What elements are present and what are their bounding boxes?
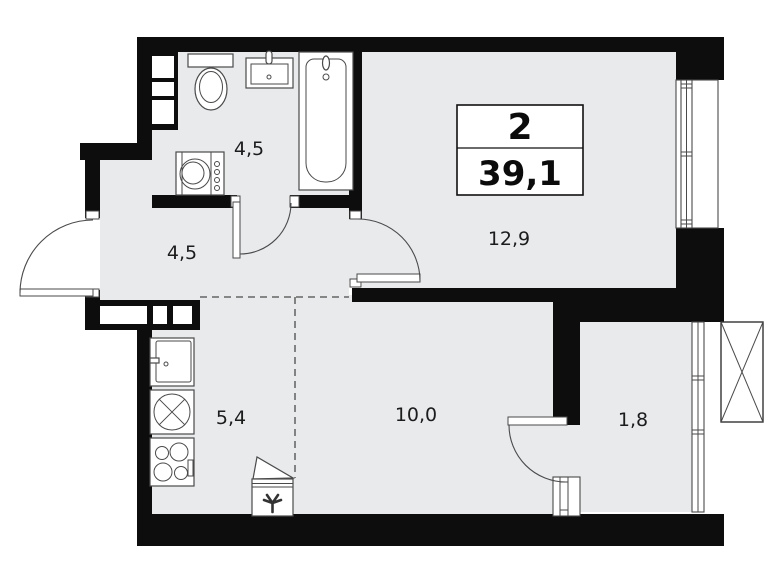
door-jamb: [350, 211, 361, 219]
wall-segment: [580, 288, 724, 322]
sink-faucet: [266, 51, 272, 64]
duct-niche: [153, 306, 167, 324]
balcony-area-label: 1,8: [618, 409, 648, 431]
title-box: 2 39,1: [457, 105, 583, 195]
living-room-window: [676, 80, 718, 228]
kitchen-faucet: [150, 358, 159, 363]
kitchen-area-label: 5,4: [216, 407, 246, 429]
balcony-glazing: [692, 322, 704, 512]
toilet-tank: [188, 54, 233, 67]
kitchen-and-room-floor: [152, 295, 553, 516]
floor-plan-canvas: 2 39,1 4,5 4,5 12,9 5,4 10,0 1,8: [0, 0, 780, 580]
floor-plan: 2 39,1 4,5 4,5 12,9 5,4 10,0 1,8: [0, 0, 780, 580]
balcony-door-passage: [553, 425, 580, 478]
door-jamb: [86, 211, 99, 219]
door-leaf: [233, 202, 240, 258]
stove-fixture: [150, 438, 194, 486]
wall-segment: [137, 514, 724, 546]
kitchen-sink-fixture: [150, 338, 194, 386]
duct-niche: [152, 56, 174, 78]
duct-niche: [173, 306, 192, 324]
exterior-cross-box: [721, 322, 763, 422]
wall-segment: [352, 288, 580, 302]
room-area-label: 10,0: [395, 404, 437, 426]
wall-segment: [553, 288, 580, 425]
door-swing-arc: [20, 220, 93, 293]
duct-niche: [152, 82, 174, 96]
wall-segment: [137, 37, 690, 52]
door-leaf: [20, 289, 93, 296]
bathtub-fixture: [299, 52, 353, 190]
duct-niche: [152, 100, 174, 124]
duct-niche: [100, 306, 147, 324]
door-leaf: [357, 274, 420, 282]
entrance-door: [20, 211, 99, 297]
balcony-lower-window: [553, 477, 580, 516]
door-leaf: [508, 417, 567, 425]
living-door-passage: [349, 219, 362, 281]
living-room-area-label: 12,9: [488, 228, 530, 250]
washing-machine-fixture: [176, 152, 224, 195]
wall-segment: [676, 37, 724, 80]
total-area-label: 39,1: [478, 154, 562, 194]
wall-segment: [152, 195, 237, 208]
wall-segment: [85, 143, 100, 218]
round-appliance-fixture: [150, 390, 194, 434]
bathtub-faucet: [323, 56, 330, 70]
bathroom-area-label: 4,5: [234, 138, 264, 160]
rooms-count-label: 2: [507, 107, 532, 148]
hallway-area-label: 4,5: [167, 242, 197, 264]
